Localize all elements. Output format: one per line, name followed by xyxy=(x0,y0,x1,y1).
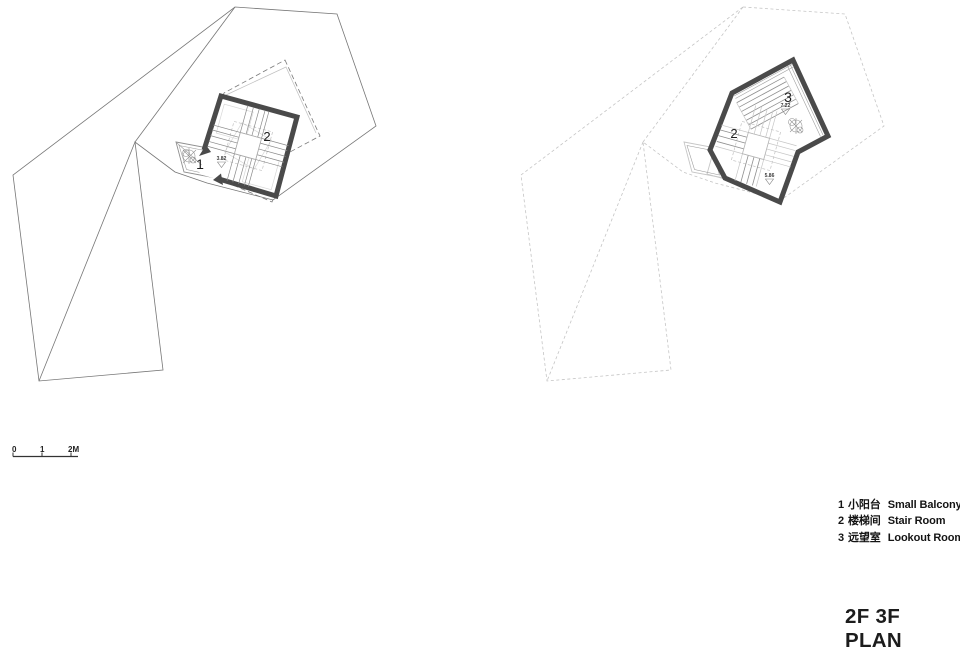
legend: 1小阳台Small Balcony 2楼梯间Stair Room 3远望室Loo… xyxy=(838,497,960,546)
room-label-balcony: 1 xyxy=(196,156,204,172)
legend-number: 1 xyxy=(838,497,848,513)
legend-en-label: Lookout Room xyxy=(888,532,960,544)
scale-bar: 0 1 2M xyxy=(12,445,79,457)
legend-item-stair-room: 2楼梯间Stair Room xyxy=(838,513,960,529)
scale-label-1: 1 xyxy=(40,445,45,454)
svg-text:5.86: 5.86 xyxy=(765,173,775,179)
legend-cn-label: 远望室 xyxy=(848,532,881,544)
floor-plan-drawing: 1 2 3.82 xyxy=(0,0,960,642)
svg-text:3.82: 3.82 xyxy=(217,156,227,162)
page-title: 2F 3F PLAN xyxy=(845,605,960,653)
legend-en-label: Small Balcony xyxy=(888,499,960,511)
legend-number: 2 xyxy=(838,513,848,529)
scale-label-2m: 2M xyxy=(68,445,79,454)
plan-3f: 2 3 7.22 5.86 xyxy=(521,7,884,381)
scale-label-0: 0 xyxy=(12,445,17,454)
room-label-stair: 2 xyxy=(730,126,737,141)
lookout-room-wall xyxy=(710,60,828,202)
building-outline-3f xyxy=(521,7,884,381)
building-outline-2f xyxy=(13,7,376,381)
legend-item-small-balcony: 1小阳台Small Balcony xyxy=(838,497,960,513)
room-label-stair: 2 xyxy=(263,129,270,144)
roof-fold-line xyxy=(39,142,135,381)
legend-cn-label: 小阳台 xyxy=(848,499,881,511)
plan-2f: 1 2 3.82 xyxy=(13,7,376,381)
legend-en-label: Stair Room xyxy=(888,515,946,527)
legend-item-lookout-room: 3远望室Lookout Room xyxy=(838,530,960,546)
legend-cn-label: 楼梯间 xyxy=(848,515,881,527)
legend-number: 3 xyxy=(838,530,848,546)
svg-text:7.22: 7.22 xyxy=(781,103,791,109)
